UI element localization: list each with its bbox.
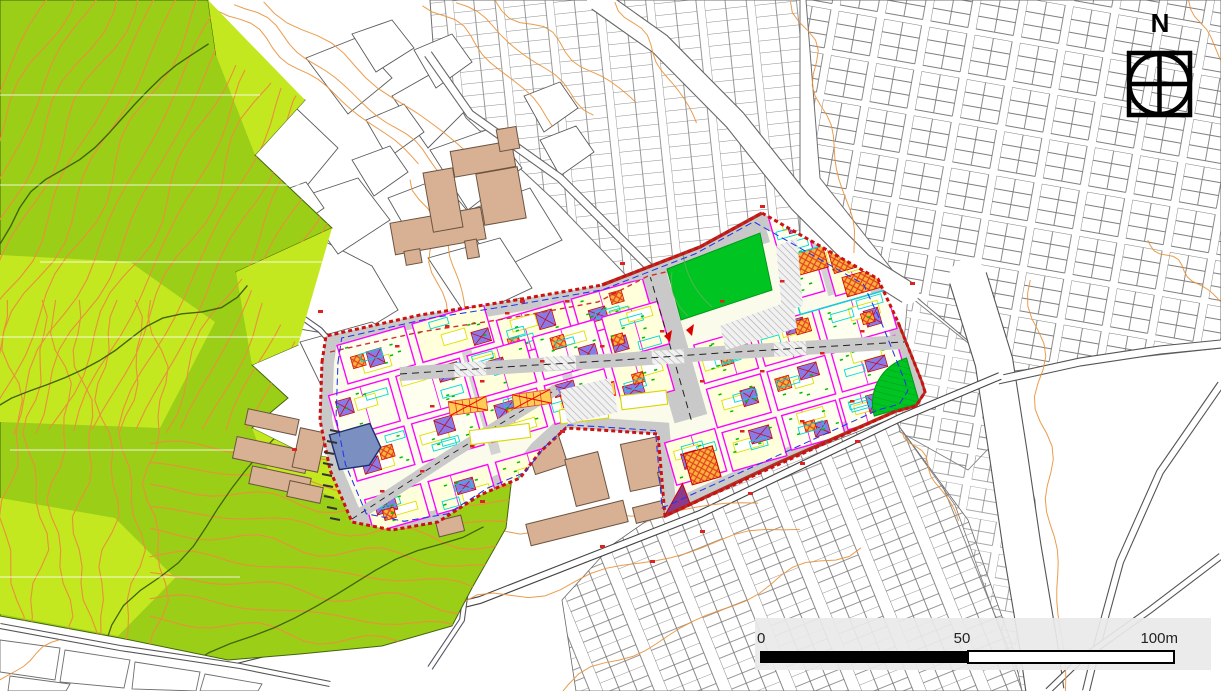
svg-text:50: 50 xyxy=(954,630,971,647)
svg-text:0: 0 xyxy=(757,630,765,647)
svg-text:N: N xyxy=(1151,8,1170,38)
svg-text:100m: 100m xyxy=(1140,630,1178,647)
